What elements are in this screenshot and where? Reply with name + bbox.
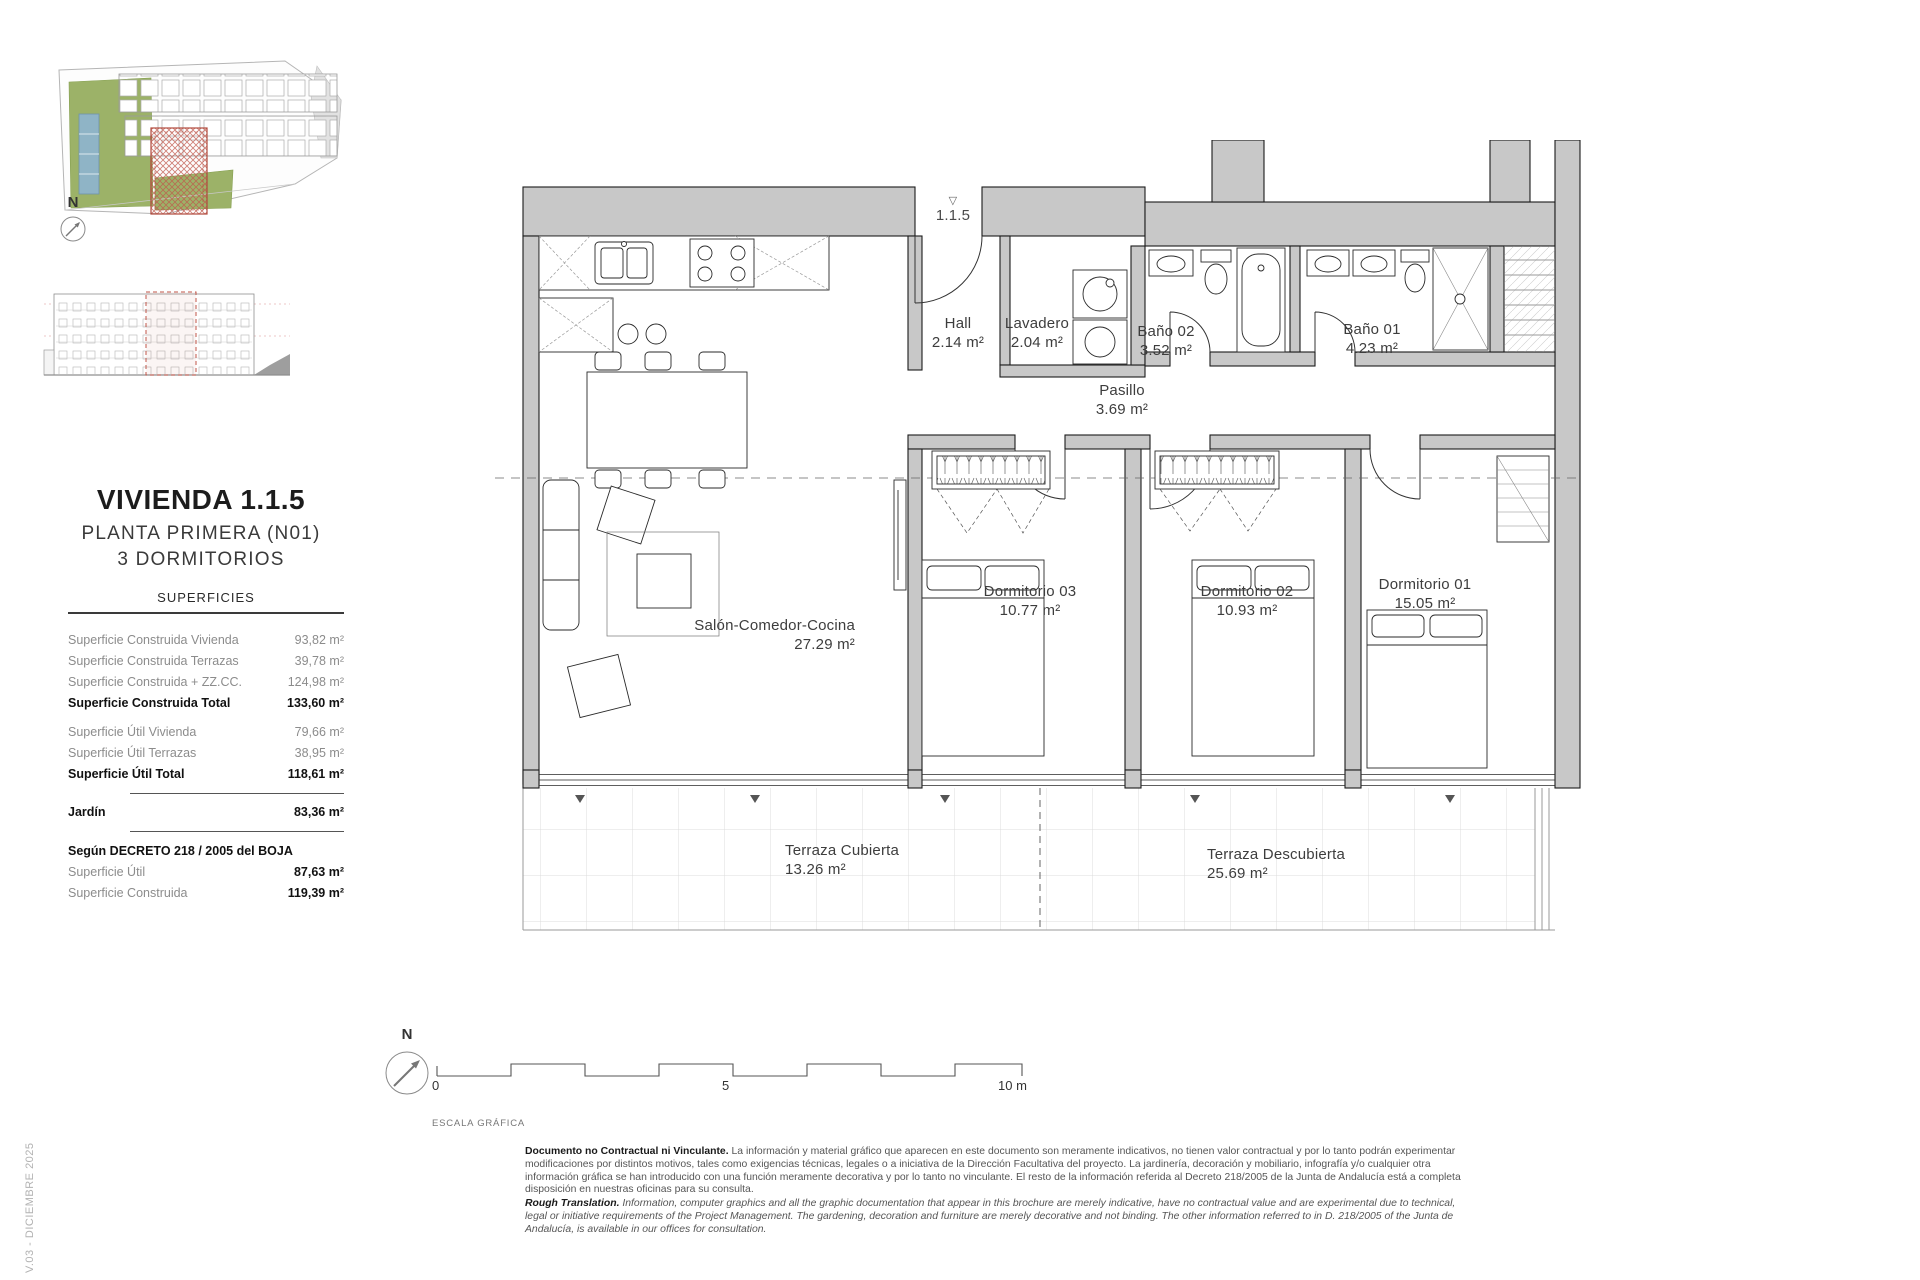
table-row: Superficie Útil 87,63 m² <box>68 862 344 883</box>
north-label: N <box>380 1026 434 1043</box>
unit-title: VIVIENDA 1.1.5 <box>40 484 362 516</box>
room-label-pasillo: Pasillo 3.69 m² <box>1072 382 1172 420</box>
site-north-compass: N <box>46 194 100 251</box>
disclaimer-spanish: Documento no Contractual ni Vinculante. … <box>525 1146 1477 1197</box>
room-label-lavadero: Lavadero 2.04 m² <box>987 315 1087 353</box>
room-label-terraza-cubierta: Terraza Cubierta 13.26 m² <box>785 842 985 880</box>
floor-plan: ▽ 1.1.5 Hall 2.14 m² Lavadero 2.04 m² Ba… <box>495 140 1595 970</box>
divider <box>130 793 344 794</box>
north-compass-icon <box>53 212 93 246</box>
title-block: VIVIENDA 1.1.5 PLANTA PRIMERA (N01) 3 DO… <box>40 484 362 571</box>
version-note: V.03 - DICIEMBRE 2025 <box>24 1108 36 1273</box>
disclaimer-lead: Documento no Contractual ni Vinculante. <box>525 1146 729 1157</box>
table-row: Superficie Útil Terrazas 38,95 m² <box>68 743 344 764</box>
surfaces-table: SUPERFICIES Superficie Construida Vivien… <box>68 590 344 904</box>
disclaimer-lead: Rough Translation. <box>525 1198 619 1209</box>
room-label-salon: Salón-Comedor-Cocina 27.29 m² <box>650 617 855 655</box>
divider <box>130 831 344 832</box>
north-compass-icon <box>380 1044 434 1102</box>
surfaces-header: SUPERFICIES <box>68 590 344 605</box>
building-elevation <box>42 266 292 391</box>
scale-tick-5: 5 <box>722 1078 729 1093</box>
room-label-dormitorio02: Dormitorio 02 10.93 m² <box>1167 583 1327 621</box>
room-label-dormitorio01: Dormitorio 01 15.05 m² <box>1345 576 1505 614</box>
north-label: N <box>46 194 100 211</box>
table-row: Superficie Construida + ZZ.CC. 124,98 m² <box>68 672 344 693</box>
scale-tick-10: 10 m <box>998 1078 1027 1093</box>
floor-plan-drawing <box>495 140 1595 970</box>
table-row-total: Superficie Útil Total 118,61 m² <box>68 764 344 785</box>
decree-header: Según DECRETO 218 / 2005 del BOJA <box>68 840 344 862</box>
table-row-garden: Jardín 83,36 m² <box>68 802 344 823</box>
room-label-bano02: Baño 02 3.52 m² <box>1111 323 1221 361</box>
table-row-total: Superficie Construida Total 133,60 m² <box>68 693 344 714</box>
room-label-bano01: Baño 01 4.23 m² <box>1317 321 1427 359</box>
scale-caption: ESCALA GRÁFICA <box>432 1118 525 1129</box>
table-row: Superficie Construida 119,39 m² <box>68 883 344 904</box>
bedrooms-subtitle: 3 DORMITORIOS <box>40 549 362 571</box>
scale-bar-icon <box>430 1050 1040 1090</box>
room-label-dormitorio03: Dormitorio 03 10.77 m² <box>950 583 1110 621</box>
floor-subtitle: PLANTA PRIMERA (N01) <box>40 523 362 545</box>
divider <box>68 612 344 614</box>
table-row: Superficie Construida Vivienda 93,82 m² <box>68 630 344 651</box>
entrance-triangle-icon: ▽ <box>923 196 983 207</box>
scale-tick-0: 0 <box>432 1078 439 1093</box>
unit-entrance-marker: ▽ 1.1.5 <box>923 196 983 226</box>
table-row: Superficie Útil Vivienda 79,66 m² <box>68 722 344 743</box>
plan-north-compass: N <box>380 1026 434 1107</box>
disclaimer-english: Rough Translation. Information, computer… <box>525 1198 1477 1236</box>
table-row: Superficie Construida Terrazas 39,78 m² <box>68 651 344 672</box>
room-label-terraza-descubierta: Terraza Descubierta 25.69 m² <box>1207 846 1427 884</box>
floor-plan-sheet: { "page": { "version": "V.03 - DICIEMBRE… <box>0 0 1920 1280</box>
